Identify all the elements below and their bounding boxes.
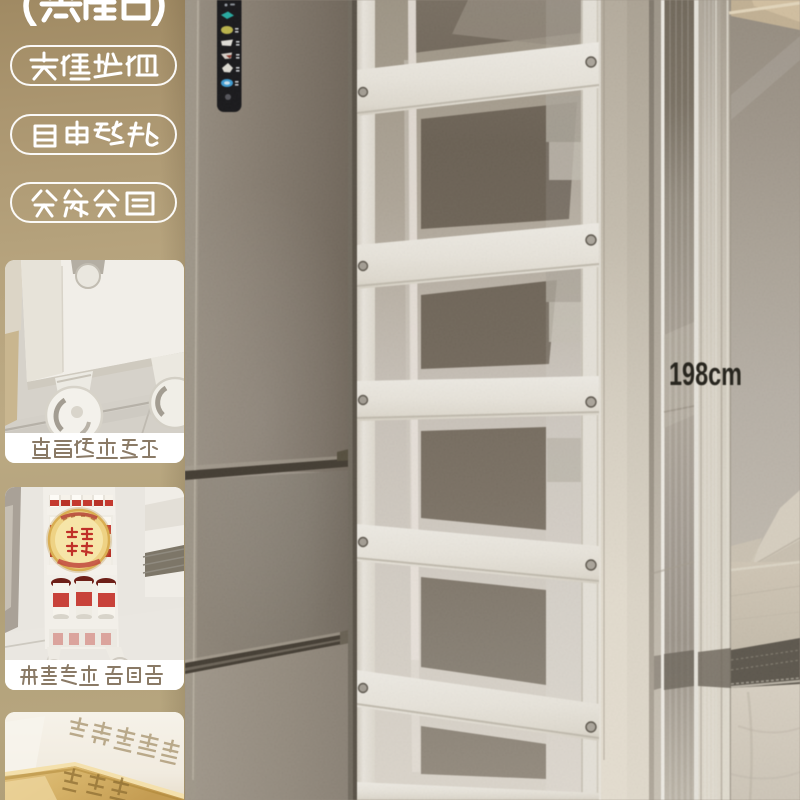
svg-text:198cm: 198cm [669, 356, 742, 392]
